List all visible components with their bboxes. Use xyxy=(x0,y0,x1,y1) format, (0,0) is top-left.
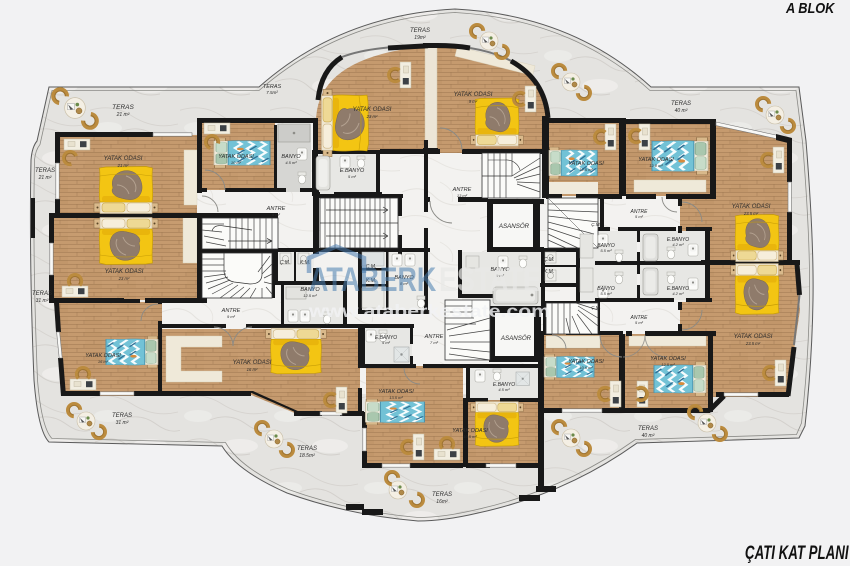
svg-text:TERAS: TERAS xyxy=(32,291,52,297)
svg-text:YATAK ODASI: YATAK ODASI xyxy=(353,107,392,113)
svg-text:4.2 m²: 4.2 m² xyxy=(672,242,684,247)
svg-text:YATAK ODASI: YATAK ODASI xyxy=(105,269,144,275)
svg-text:ATABERK: ATABERK xyxy=(309,261,436,299)
svg-text:YATAK ODASI: YATAK ODASI xyxy=(454,92,493,98)
svg-text:4.5 m²: 4.5 m² xyxy=(285,160,297,165)
svg-text:16m²: 16m² xyxy=(436,499,448,505)
svg-text:5 m²: 5 m² xyxy=(635,320,644,325)
svg-text:10 m²: 10 m² xyxy=(231,160,242,165)
svg-text:TERAS: TERAS xyxy=(432,492,452,498)
svg-text:K.M.: K.M. xyxy=(544,269,554,275)
svg-text:TERAS: TERAS xyxy=(112,413,132,419)
svg-text:YATAK ODASI: YATAK ODASI xyxy=(732,204,771,210)
svg-text:YATAK ODASI: YATAK ODASI xyxy=(734,334,773,340)
svg-text:4.5 m²: 4.5 m² xyxy=(498,387,510,392)
svg-text:23 m²: 23 m² xyxy=(118,276,130,281)
svg-text:TERAS: TERAS xyxy=(638,426,658,432)
svg-text:TERAS: TERAS xyxy=(35,168,55,174)
svg-text:9 m²: 9 m² xyxy=(272,212,281,217)
svg-text:40 m²: 40 m² xyxy=(675,108,688,114)
svg-text:5 m²: 5 m² xyxy=(382,340,391,345)
svg-text:12.5 m²: 12.5 m² xyxy=(579,167,593,172)
svg-text:9 m²: 9 m² xyxy=(469,99,478,104)
svg-text:16 m²: 16 m² xyxy=(98,359,109,364)
svg-text:YATAK ODASI: YATAK ODASI xyxy=(233,360,272,366)
svg-text:YATAK ODASI: YATAK ODASI xyxy=(104,156,143,162)
svg-text:Ç.M.: Ç.M. xyxy=(280,260,291,266)
svg-text:TERAS: TERAS xyxy=(410,28,430,34)
svg-text:ASANSÖR: ASANSÖR xyxy=(498,223,530,230)
svg-text:5 m²: 5 m² xyxy=(348,174,357,179)
svg-text:ASANSÖR: ASANSÖR xyxy=(500,335,532,342)
svg-text:21 m²: 21 m² xyxy=(38,175,52,181)
svg-text:5.5 m²: 5.5 m² xyxy=(600,291,612,296)
svg-text:23.5 m²: 23.5 m² xyxy=(743,211,759,216)
svg-text:A BLOK: A BLOK xyxy=(785,0,835,16)
svg-text:21 m²: 21 m² xyxy=(117,163,129,168)
svg-text:TERAS: TERAS xyxy=(671,101,691,107)
svg-text:23 m²: 23 m² xyxy=(366,114,378,119)
svg-text:Ç.M.: Ç.M. xyxy=(544,257,555,263)
svg-text:10.6 m²: 10.6 m² xyxy=(579,365,593,370)
svg-text:7.5m²: 7.5m² xyxy=(266,90,278,95)
svg-text:Ç.M.: Ç.M. xyxy=(591,222,601,227)
svg-text:TERAS: TERAS xyxy=(112,104,134,111)
svg-text:5 m²: 5 m² xyxy=(635,214,644,219)
svg-text:23.5 m²: 23.5 m² xyxy=(745,341,761,346)
svg-text:Ç.M.: Ç.M. xyxy=(591,305,601,310)
svg-text:31 m²: 31 m² xyxy=(116,420,129,426)
svg-text:13 m²: 13 m² xyxy=(457,193,468,198)
svg-text:TERAS: TERAS xyxy=(297,446,317,452)
svg-text:31 m²: 31 m² xyxy=(36,298,49,304)
svg-text:7 m²: 7 m² xyxy=(430,340,439,345)
svg-text:9 m²: 9 m² xyxy=(227,314,236,319)
svg-text:ESTATE: ESTATE xyxy=(439,261,541,299)
svg-text:4.2 m²: 4.2 m² xyxy=(672,291,684,296)
svg-text:www.ataberkestate.com: www.ataberkestate.com xyxy=(308,301,550,321)
svg-text:19m²: 19m² xyxy=(414,35,426,41)
svg-text:12.8 m²: 12.8 m² xyxy=(649,163,663,168)
svg-text:12.5 m²: 12.5 m² xyxy=(661,362,675,367)
svg-text:10.5 m²: 10.5 m² xyxy=(463,434,477,439)
svg-text:21 m²: 21 m² xyxy=(116,112,130,118)
svg-text:13.5 m²: 13.5 m² xyxy=(389,395,403,400)
svg-text:5.5 m²: 5.5 m² xyxy=(600,248,612,253)
svg-text:16 m²: 16 m² xyxy=(247,367,258,372)
svg-text:ÇATI KAT PLANI: ÇATI KAT PLANI xyxy=(745,543,849,564)
svg-text:40 m²: 40 m² xyxy=(642,433,655,439)
svg-text:18.5m²: 18.5m² xyxy=(299,453,315,459)
